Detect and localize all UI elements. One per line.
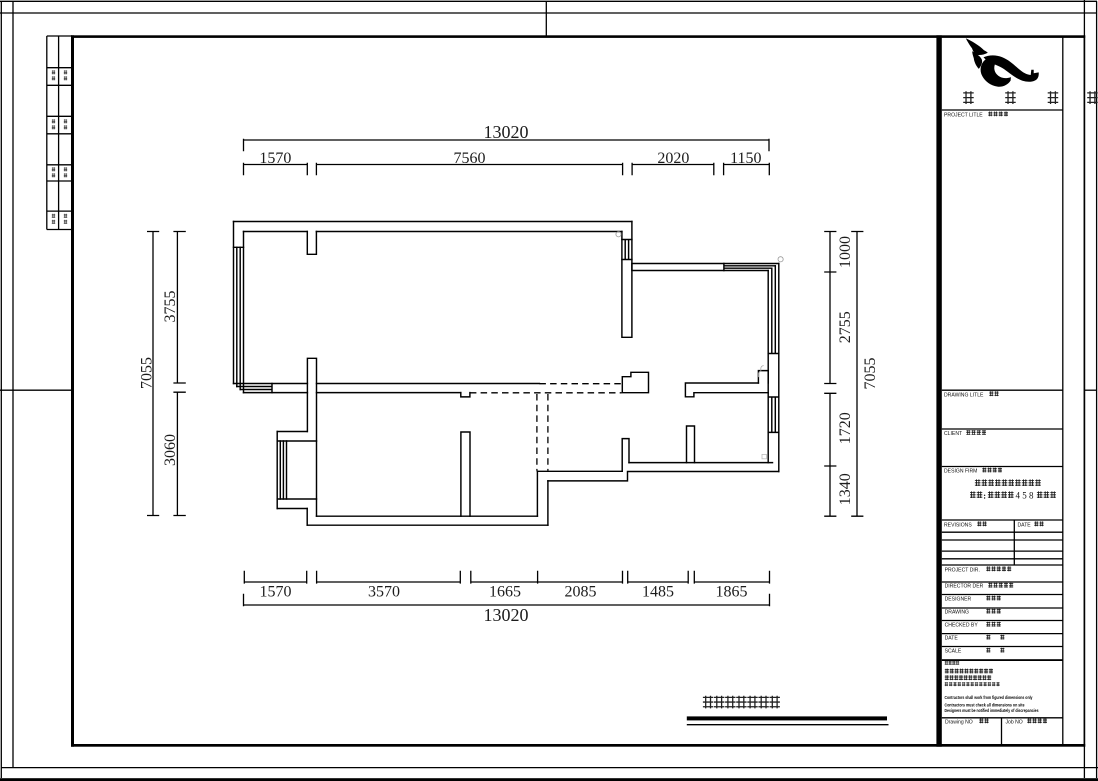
svg-text:3755: 3755: [162, 291, 179, 323]
svg-text:Drawing NO: Drawing NO: [945, 719, 973, 725]
svg-text:1865: 1865: [716, 583, 748, 600]
svg-text:CHECKED BY: CHECKED BY: [945, 623, 979, 629]
svg-text:7055: 7055: [862, 358, 879, 390]
svg-text:REVISIONS: REVISIONS: [944, 523, 972, 529]
svg-text:CLIENT: CLIENT: [944, 431, 962, 437]
svg-text:DATE: DATE: [945, 636, 959, 642]
svg-text:PROJECT LITLE: PROJECT LITLE: [944, 113, 983, 119]
svg-text:DRAWING LITLE: DRAWING LITLE: [944, 392, 984, 398]
svg-text:DESIGN FIRM: DESIGN FIRM: [944, 469, 977, 475]
svg-text:2755: 2755: [837, 311, 854, 343]
svg-text:1340: 1340: [837, 473, 854, 505]
svg-text:7055: 7055: [139, 357, 156, 389]
svg-text:2085: 2085: [565, 583, 597, 600]
svg-text:1570: 1570: [260, 583, 292, 600]
svg-text:1150: 1150: [730, 150, 761, 167]
svg-text:DATE: DATE: [1018, 523, 1032, 529]
svg-text:1665: 1665: [489, 583, 521, 600]
svg-text:1720: 1720: [837, 412, 854, 444]
svg-text:Designers must be notified imm: Designers must be notified immediately o…: [945, 708, 1039, 714]
svg-text:13020: 13020: [484, 605, 529, 625]
svg-text:3060: 3060: [162, 434, 179, 466]
svg-text:Contractors shall work from fi: Contractors shall work from figured dime…: [945, 695, 1033, 701]
svg-text:DESIGNER: DESIGNER: [945, 597, 972, 603]
svg-text:13020: 13020: [484, 122, 529, 142]
svg-text:Contractors must check all dim: Contractors must check all dimensions on…: [945, 702, 1025, 708]
svg-text:2020: 2020: [657, 150, 689, 167]
svg-text:PROJECT DIR.: PROJECT DIR.: [945, 568, 980, 574]
svg-text:DIRECTOR DER: DIRECTOR DER: [945, 584, 984, 590]
svg-text:DRAWING: DRAWING: [945, 610, 969, 616]
svg-text:Job NO: Job NO: [1006, 719, 1023, 725]
svg-text:1000: 1000: [837, 236, 854, 268]
svg-text:4 5 8: 4 5 8: [1016, 491, 1035, 501]
svg-text:7560: 7560: [454, 150, 486, 167]
svg-text:1485: 1485: [642, 583, 674, 600]
svg-text:SCALE: SCALE: [945, 649, 962, 655]
svg-text:3570: 3570: [368, 583, 400, 600]
svg-text:1570: 1570: [259, 150, 291, 167]
